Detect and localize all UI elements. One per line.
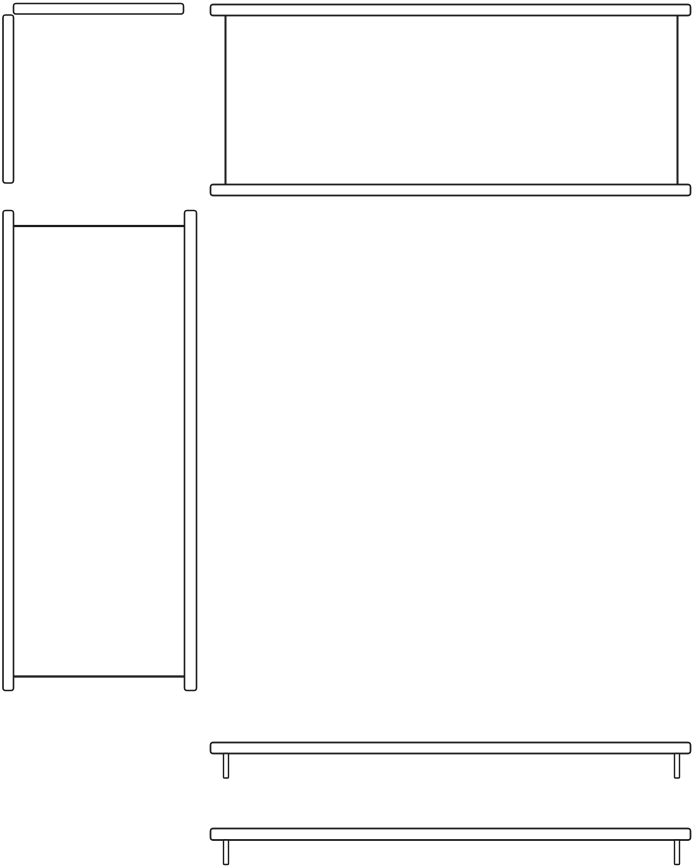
front-view <box>211 5 691 196</box>
shelf-side-view-upper-plank <box>211 743 691 754</box>
corner-edge-view-top-strip <box>14 4 184 15</box>
side-view <box>3 211 197 691</box>
side-view-left-panel <box>3 211 14 691</box>
side-view-right-panel <box>185 211 197 691</box>
front-view-top-plank <box>211 5 691 16</box>
shelf-side-view-upper-left-leg <box>224 754 229 779</box>
corner-edge-view-left-strip <box>3 15 14 183</box>
shelf-side-view-lower-left-leg <box>224 840 229 865</box>
shelf-side-view-upper-right-leg <box>675 754 680 779</box>
shelf-side-view-lower-right-leg <box>675 840 680 865</box>
shelf-side-view-upper <box>211 743 691 779</box>
shelf-side-view-lower-plank <box>211 829 691 841</box>
shelf-side-view-lower <box>211 829 691 865</box>
furniture-parts-drawing <box>0 0 697 867</box>
front-view-bottom-plank <box>211 185 691 196</box>
corner-edge-view <box>3 4 184 184</box>
technical-drawing-page <box>0 0 697 867</box>
